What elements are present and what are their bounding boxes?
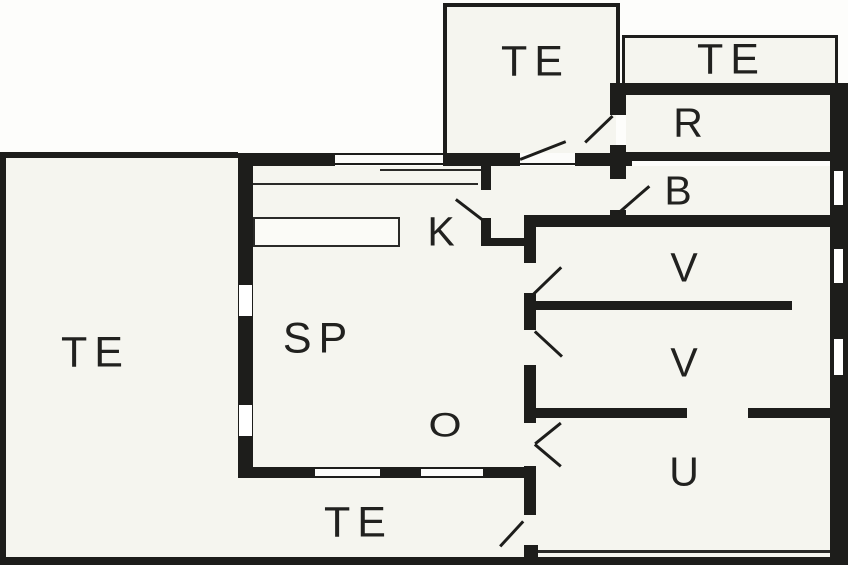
wall-sp-bottom-b <box>380 467 421 478</box>
room-label-o: O <box>428 407 461 446</box>
room-label-b: B <box>664 168 691 215</box>
wall-v2-u-divider-b <box>748 408 848 418</box>
window-te-sp-upper <box>238 284 253 317</box>
kitchen-counter <box>253 217 400 247</box>
wall-main-vertical-a <box>524 227 536 263</box>
wall-te-top-right <box>616 3 620 83</box>
wall-hall-left-a <box>481 160 491 190</box>
floor-plan: TE TE TE R B V V U K SP O TE <box>0 0 848 565</box>
window-sp-bottom-right <box>421 467 483 478</box>
room-label-te-bottom: TE <box>317 499 393 548</box>
room-label-te-right: TE <box>690 36 766 85</box>
room-label-k: K <box>427 209 454 256</box>
wall-rb-left-a <box>610 83 626 115</box>
counter-edge-long <box>253 183 478 185</box>
wall-main-vertical-d <box>524 466 536 515</box>
window-u-bottom <box>538 550 830 553</box>
window-b-right <box>833 170 844 206</box>
window-sp-top <box>335 153 443 165</box>
wall-sp-bottom-a <box>238 467 315 478</box>
wall-main-vertical-b <box>524 293 536 330</box>
window-sp-bottom-left <box>315 467 380 478</box>
window-v2-right <box>833 338 844 376</box>
wall-r-top <box>610 83 848 95</box>
counter-edge-upper <box>380 169 481 171</box>
room-label-sp: SP <box>276 315 354 364</box>
wall-te-right-left <box>622 35 625 83</box>
wall-v2-u-divider-a <box>536 408 687 418</box>
wall-main-vertical-c <box>524 365 536 423</box>
wall-outer-bottom <box>0 557 848 565</box>
room-label-v1: V <box>670 245 697 292</box>
wall-v1-v2-divider <box>536 301 792 310</box>
window-te-sp-lower <box>238 404 253 437</box>
wall-rb-left-b <box>610 145 626 179</box>
room-label-u: U <box>669 449 699 496</box>
wall-te-top-top <box>443 3 620 7</box>
wall-te-right-right <box>835 35 838 83</box>
room-label-te-left: TE <box>54 329 130 378</box>
wall-outer-left <box>0 152 6 565</box>
room-fill-r <box>626 95 830 152</box>
wall-te-top-left <box>443 3 447 155</box>
room-label-v2: V <box>670 340 697 387</box>
wall-b-bottom <box>524 215 848 227</box>
room-label-r: R <box>673 100 703 147</box>
window-v1-right <box>833 248 844 284</box>
wall-r-bottom <box>626 152 848 161</box>
wall-main-vertical-e <box>524 545 538 557</box>
room-label-te-top: TE <box>494 38 570 87</box>
wall-left-te-top <box>0 152 238 158</box>
